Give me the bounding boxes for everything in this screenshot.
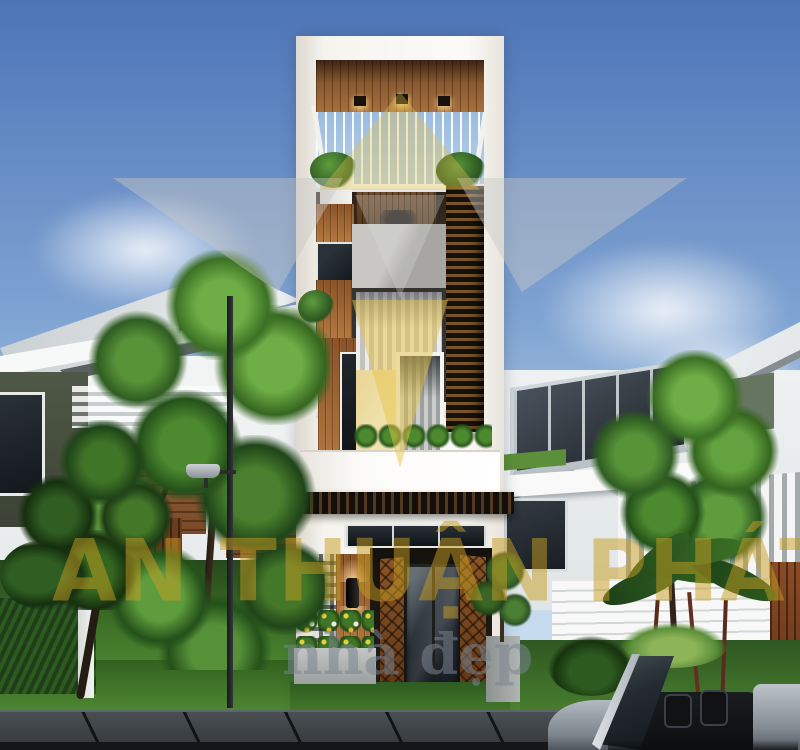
car	[548, 648, 800, 750]
rooftop-wood-ceiling	[316, 60, 484, 112]
f3-wood-panel-upper	[316, 204, 354, 242]
terrace-plant-left	[310, 152, 358, 188]
terrace-plant-right	[436, 152, 486, 190]
watermark-tagline-text: nhà đẹp	[282, 622, 533, 688]
watermark-brand-text: AN THUẬN PHÁT	[52, 521, 800, 621]
render-canvas: AN THUẬN PHÁT nhà đẹp	[0, 0, 800, 750]
car-seat-headrest	[700, 690, 728, 726]
car-seat-headrest	[664, 694, 692, 728]
downlight	[396, 94, 408, 104]
street-lamp-pole	[227, 296, 233, 708]
downlight	[438, 96, 450, 106]
louver-screen	[446, 186, 484, 432]
downlight	[354, 96, 366, 106]
car-door-shadow	[608, 740, 798, 750]
street-lamp-head	[186, 464, 220, 478]
bay-window-top-panel	[352, 224, 446, 288]
